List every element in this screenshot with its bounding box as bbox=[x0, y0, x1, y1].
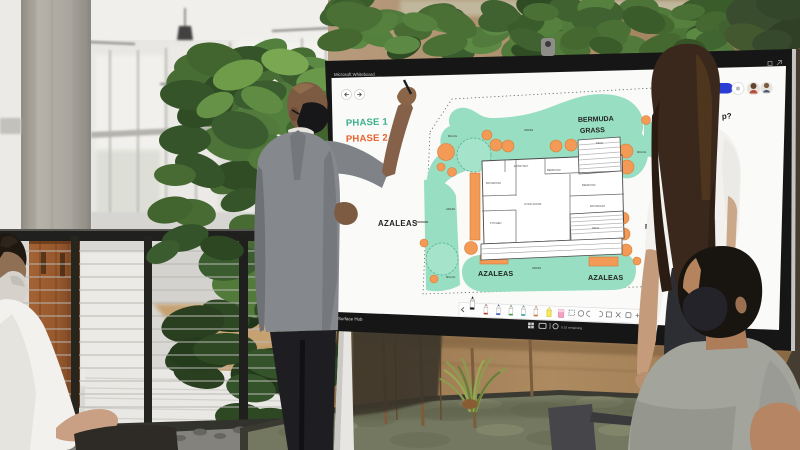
svg-text:0:16 remaining: 0:16 remaining bbox=[561, 325, 582, 330]
svg-text:BEDROOM: BEDROOM bbox=[547, 168, 560, 172]
svg-text:BERMUDA: BERMUDA bbox=[578, 116, 614, 124]
svg-text:AZALEAS: AZALEAS bbox=[588, 273, 623, 282]
svg-text:KITCHEN: KITCHEN bbox=[490, 221, 502, 225]
svg-text:LIVING ROOM: LIVING ROOM bbox=[524, 202, 541, 206]
svg-text:MULCH: MULCH bbox=[637, 150, 646, 154]
svg-text:AZALEAS: AZALEAS bbox=[478, 269, 513, 278]
svg-text:GRASS: GRASS bbox=[524, 128, 533, 132]
svg-text:PHASE 1: PHASE 1 bbox=[346, 117, 389, 129]
svg-text:BATHROOM: BATHROOM bbox=[486, 181, 501, 185]
svg-text:GRASS: GRASS bbox=[580, 127, 605, 135]
svg-text:GRASS: GRASS bbox=[446, 207, 455, 211]
svg-text:DECK: DECK bbox=[596, 141, 603, 145]
svg-text:MULCH: MULCH bbox=[446, 275, 455, 279]
svg-text:DECK: DECK bbox=[592, 226, 599, 230]
svg-text:p?: p? bbox=[722, 111, 732, 121]
svg-text:BEDROOM: BEDROOM bbox=[582, 183, 595, 187]
svg-text:MULCH: MULCH bbox=[448, 134, 457, 138]
svg-text:Surface Hub: Surface Hub bbox=[338, 316, 363, 322]
svg-text:Microsoft Whiteboard: Microsoft Whiteboard bbox=[334, 72, 375, 77]
svg-text:AZALEAS: AZALEAS bbox=[378, 219, 418, 228]
svg-text:BATHROOM: BATHROOM bbox=[590, 204, 605, 208]
svg-text:ENTRYWAY: ENTRYWAY bbox=[514, 164, 529, 168]
svg-text:GRASS: GRASS bbox=[532, 266, 541, 270]
svg-text:PHASE 2: PHASE 2 bbox=[346, 133, 388, 145]
